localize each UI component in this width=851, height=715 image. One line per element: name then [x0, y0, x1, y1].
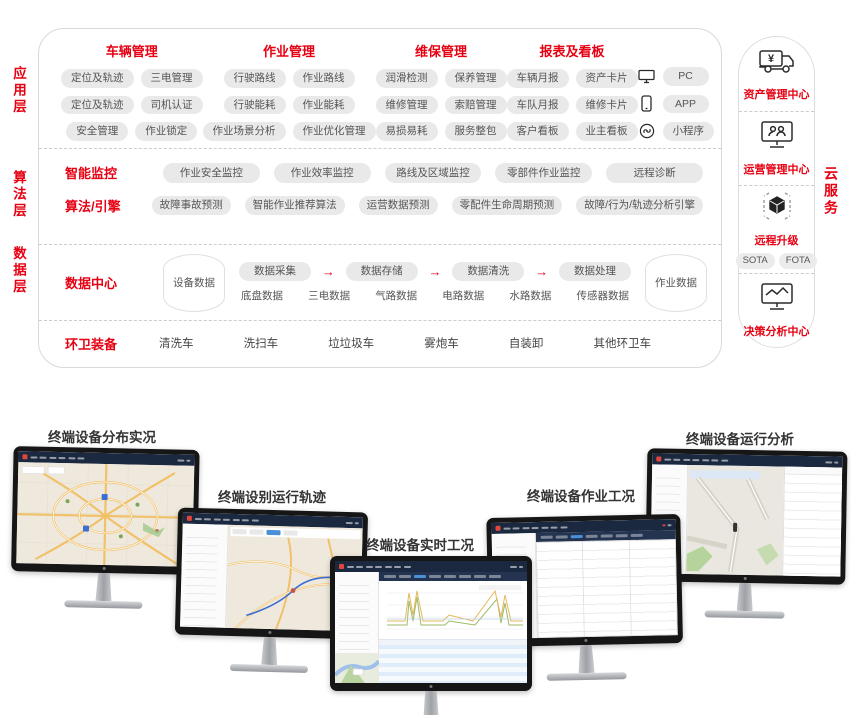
sota-chip: SOTA [736, 253, 775, 269]
equipment-item: 垃垃圾车 [328, 335, 374, 351]
pc-icon [638, 67, 656, 85]
flow-arrow-icon: → [535, 265, 548, 278]
feature-chip: 司机认证 [141, 96, 203, 115]
feature-chip: 定位及轨迹 [61, 96, 134, 115]
algo-chip: 故障事故预测 [152, 196, 231, 216]
monitor-distribution [10, 446, 199, 610]
flow-step: 数据采集 [239, 262, 311, 281]
algorithm-layer: 智能监控 作业安全监控 作业效率监控 路线及区域监控 零部件作业监控 远程诊断 … [39, 149, 721, 245]
equipment-item: 清洗车 [159, 335, 194, 351]
data-source: 气路数据 [375, 288, 417, 303]
monitor-caption-track: 终端设别运行轨迹 [218, 486, 326, 506]
group-title: 作业管理 [263, 41, 315, 60]
device-chip: 小程序 [663, 122, 715, 141]
layer-label-data: 数据层 [8, 246, 28, 296]
monitor-realtime [330, 556, 532, 715]
fota-chip: FOTA [779, 253, 818, 269]
feature-chip: 维修卡片 [576, 96, 638, 115]
equipment-item: 洗扫车 [244, 335, 279, 351]
device-chip: APP [663, 95, 709, 114]
feature-chip: 作业锁定 [135, 122, 197, 141]
equipment-item: 雾炮车 [424, 335, 459, 351]
page: 应用层 算法层 数据层 云服务 车辆管理 定位及轨迹三电管理 定位及轨迹司机认证… [0, 0, 851, 715]
group-report-dashboard: 报表及看板 车辆月报资产卡片 车队月报维修卡片 客户看板业主看板 [507, 41, 638, 148]
application-layer: 车辆管理 定位及轨迹三电管理 定位及轨迹司机认证 安全管理作业锁定 作业管理 行… [39, 29, 721, 149]
map-canvas [686, 465, 784, 576]
line-chart [379, 581, 527, 639]
monitor-caption-operation: 终端设备作业工况 [527, 485, 635, 505]
app-logo-icon [656, 456, 661, 461]
app-logo-icon [339, 564, 344, 569]
screen-header [335, 561, 527, 572]
feature-chip: 行驶能耗 [224, 96, 286, 115]
layer-label-application: 应用层 [8, 66, 28, 116]
data-layer: 数据中心 设备数据 数据采集 → 数据存储 → 数据清洗 → 数据处理 底盘数据… [39, 245, 721, 321]
algo-engine-row: 算法/引擎 故障事故预测 智能作业推荐算法 运营数据预测 零配件生命周期预测 故… [65, 196, 703, 216]
analysis-monitor-icon [758, 281, 796, 318]
ota-cube-icon [759, 190, 795, 227]
svg-text:¥: ¥ [767, 53, 774, 65]
cloud-section-label: 运营管理中心 [744, 161, 810, 177]
mini-map [335, 653, 379, 683]
cloud-section-label: 资产管理中心 [744, 86, 810, 102]
app-logo-icon [22, 454, 27, 459]
monitor-caption-distribution: 终端设备分布实况 [48, 426, 156, 446]
equipment-item: 自装卸 [509, 335, 544, 351]
flow-step: 数据存储 [346, 262, 418, 281]
feature-chip: 车辆月报 [507, 69, 569, 88]
feature-chip: 服务整包 [445, 122, 507, 141]
device-chip: PC [663, 67, 709, 86]
app-logo-icon [495, 526, 500, 531]
phone-icon [638, 95, 656, 113]
device-data-cylinder: 设备数据 [163, 254, 225, 312]
algo-chip: 零配件生命周期预测 [452, 196, 563, 216]
decision-analysis-center: 决策分析中心 [739, 274, 814, 348]
algo-chip: 智能作业推荐算法 [245, 196, 345, 216]
equipment-title: 环卫装备 [65, 334, 149, 353]
data-table [536, 539, 678, 638]
flow-arrow-icon: → [428, 265, 441, 278]
feature-chip: 业主看板 [576, 122, 638, 141]
feature-chip: 车队月报 [507, 96, 569, 115]
equipment-layer: 环卫装备 清洗车 洗扫车 垃垃圾车 雾炮车 自装卸 其他环卫车 [39, 321, 721, 365]
layer-label-algorithm: 算法层 [8, 170, 28, 220]
cloud-section-label: 远程升级 [755, 232, 799, 248]
screen-sidebar [180, 524, 229, 628]
remote-upgrade: 远程升级 SOTA FOTA [739, 186, 814, 274]
smart-monitoring-row: 智能监控 作业安全监控 作业效率监控 路线及区域监控 零部件作业监控 远程诊断 [65, 163, 703, 183]
algo-chip: 运营数据预测 [359, 196, 438, 216]
client-devices: PC APP 小程序 [638, 41, 715, 148]
operation-mgmt-center: 运营管理中心 [739, 112, 814, 187]
cloud-service-label: 云服务 [821, 166, 841, 217]
cloud-service-pill: ¥ 资产管理中心 运营管理中心 [738, 36, 815, 348]
asset-truck-icon: ¥ [757, 46, 797, 81]
architecture-panel: 车辆管理 定位及轨迹三电管理 定位及轨迹司机认证 安全管理作业锁定 作业管理 行… [38, 28, 722, 368]
data-source: 底盘数据 [241, 288, 283, 303]
feature-chip: 易损易耗 [376, 122, 438, 141]
flow-step: 数据清洗 [452, 262, 524, 281]
job-data-cylinder: 作业数据 [645, 254, 707, 312]
feature-chip: 作业路线 [293, 69, 355, 88]
screen-sidebar [335, 572, 379, 683]
equipment-item: 其他环卫车 [593, 335, 651, 351]
app-logo-icon [187, 516, 192, 521]
feature-chip: 作业优化管理 [293, 122, 376, 141]
row-title: 智能监控 [65, 163, 149, 182]
flow-arrow-icon: → [322, 265, 335, 278]
cloud-section-label: 决策分析中心 [744, 323, 810, 339]
mini-program-icon [638, 122, 656, 140]
monitor-caption-analysis: 终端设备运行分析 [686, 428, 794, 448]
feature-chip: 客户看板 [507, 122, 569, 141]
group-title: 车辆管理 [106, 41, 158, 60]
group-title: 报表及看板 [539, 41, 604, 60]
asset-mgmt-center: ¥ 资产管理中心 [739, 37, 814, 112]
operation-monitor-icon [758, 119, 796, 156]
feature-chip: 三电管理 [141, 69, 203, 88]
feature-chip: 行驶路线 [224, 69, 286, 88]
algo-chip: 作业安全监控 [163, 163, 260, 183]
group-maintenance-mgmt: 维保管理 润滑检测保养管理 维修管理索赔管理 易损易耗服务整包 [376, 41, 507, 148]
data-source: 三电数据 [308, 288, 350, 303]
data-center-title: 数据中心 [65, 273, 149, 292]
feature-chip: 保养管理 [445, 69, 507, 88]
screen-tabbar [379, 572, 527, 581]
group-title: 维保管理 [415, 41, 467, 60]
data-source: 电路数据 [442, 288, 484, 303]
algo-chip: 路线及区域监控 [385, 163, 482, 183]
feature-chip: 作业场景分析 [203, 122, 286, 141]
data-source: 传感器数据 [576, 288, 629, 303]
group-vehicle-mgmt: 车辆管理 定位及轨迹三电管理 定位及轨迹司机认证 安全管理作业锁定 [61, 41, 203, 148]
detail-panel [782, 467, 842, 577]
map-canvas [16, 462, 194, 567]
data-source: 水路数据 [509, 288, 551, 303]
feature-chip: 维修管理 [376, 96, 438, 115]
group-operation-mgmt: 作业管理 行驶路线作业路线 行驶能耗作业能耗 作业场景分析作业优化管理 [203, 41, 376, 148]
feature-chip: 作业能耗 [293, 96, 355, 115]
feature-chip: 定位及轨迹 [61, 69, 134, 88]
feature-chip: 索赔管理 [445, 96, 507, 115]
feature-chip: 安全管理 [66, 122, 128, 141]
algo-chip: 零部件作业监控 [495, 163, 592, 183]
data-flow: 数据采集 → 数据存储 → 数据清洗 → 数据处理 底盘数据 三电数据 气路数据… [239, 262, 631, 303]
feature-chip: 润滑检测 [376, 69, 438, 88]
row-title: 算法/引擎 [65, 196, 138, 215]
data-table [379, 645, 527, 683]
algo-chip: 故障/行为/轨迹分析引擎 [576, 196, 703, 216]
monitor-caption-realtime: 终端设备实时工况 [366, 534, 474, 554]
flow-step: 数据处理 [559, 262, 631, 281]
algo-chip: 远程诊断 [606, 163, 703, 183]
algo-chip: 作业效率监控 [274, 163, 371, 183]
feature-chip: 资产卡片 [576, 69, 638, 88]
